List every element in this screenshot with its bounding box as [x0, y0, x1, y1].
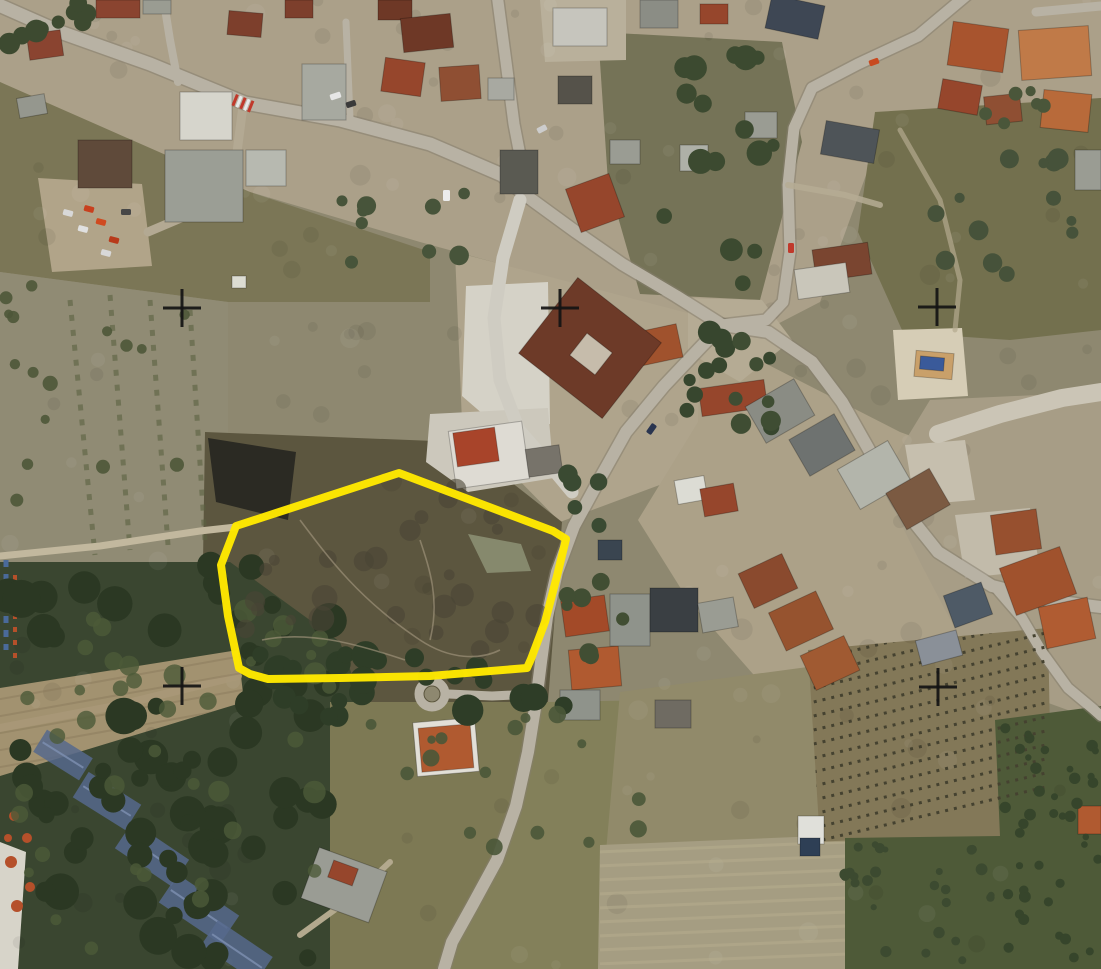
field-north-east	[858, 98, 1101, 340]
building	[78, 140, 132, 188]
building	[553, 8, 607, 46]
car	[788, 243, 794, 253]
building	[246, 150, 286, 186]
building	[655, 700, 691, 728]
building	[488, 78, 514, 100]
building	[1078, 806, 1101, 834]
building	[938, 79, 983, 115]
building	[598, 540, 622, 560]
building	[558, 76, 592, 104]
building	[1075, 150, 1101, 190]
top-right-corner-road	[1036, 6, 1101, 12]
building	[1018, 26, 1091, 81]
building	[698, 597, 739, 633]
parking-dirt	[38, 178, 152, 272]
building	[700, 483, 738, 516]
satellite-canvas	[0, 0, 1101, 969]
building	[227, 11, 263, 38]
building	[990, 509, 1041, 555]
building	[800, 838, 820, 856]
car	[443, 190, 450, 201]
building	[180, 92, 232, 140]
car	[121, 209, 131, 215]
building	[947, 21, 1009, 72]
building	[232, 276, 246, 288]
building	[640, 0, 678, 28]
building	[378, 0, 412, 20]
building	[400, 13, 453, 52]
building	[650, 588, 698, 632]
building	[610, 140, 640, 164]
building	[381, 57, 425, 96]
building	[525, 445, 563, 477]
building	[143, 0, 171, 14]
building	[919, 356, 944, 371]
building	[500, 150, 538, 194]
building	[439, 65, 481, 102]
building	[165, 150, 243, 222]
building	[96, 0, 140, 18]
building	[700, 4, 728, 24]
satellite-map-view[interactable]	[0, 0, 1101, 969]
building	[285, 0, 313, 18]
building	[453, 427, 499, 467]
building	[610, 594, 650, 646]
building	[16, 94, 47, 119]
